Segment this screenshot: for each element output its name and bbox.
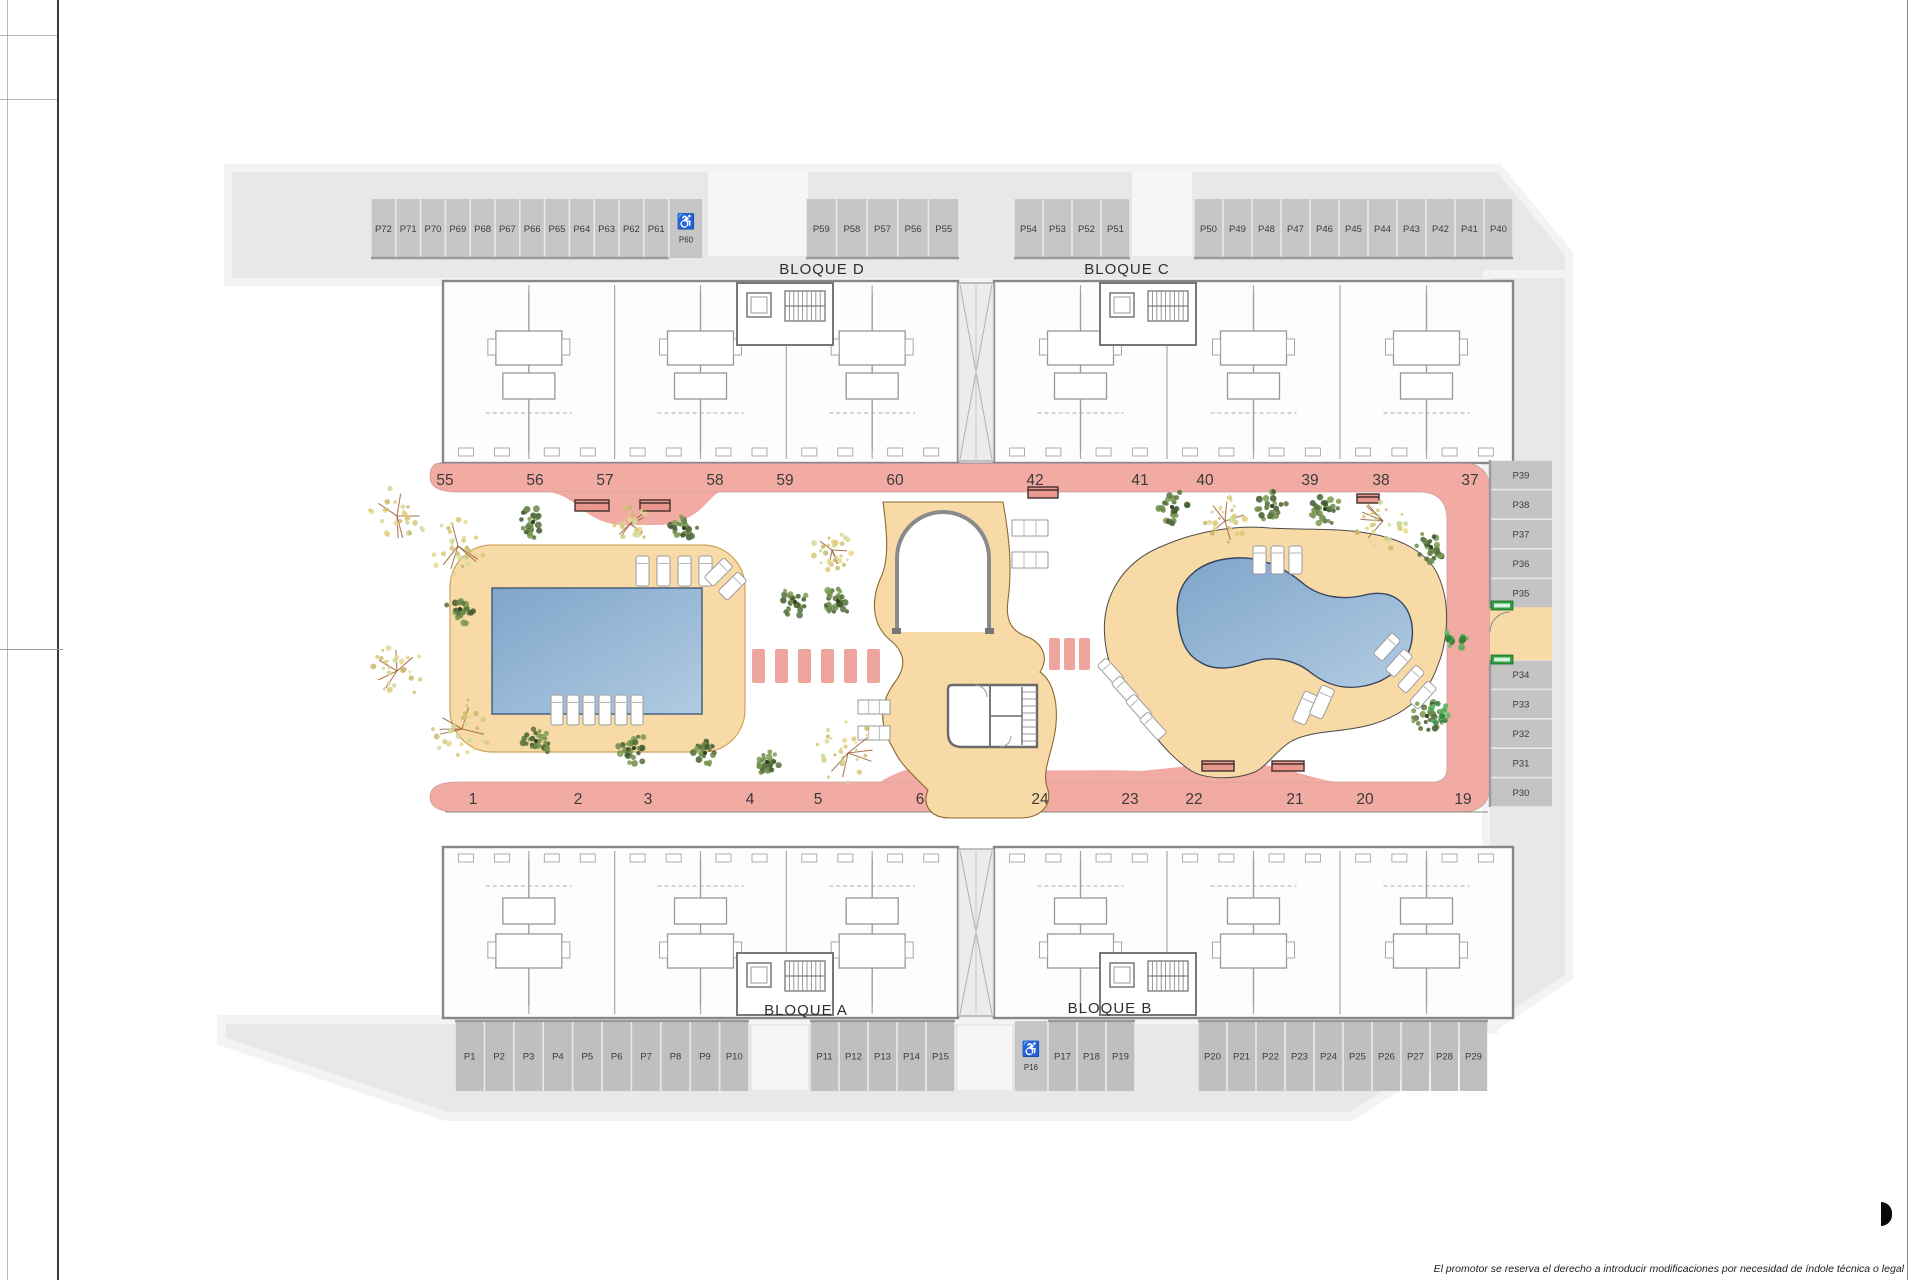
foliage-dot <box>626 742 630 746</box>
foliage-dot <box>481 553 486 558</box>
foliage-dot <box>851 736 856 741</box>
foliage-dot <box>437 746 441 750</box>
closet <box>905 339 913 355</box>
foliage-dot <box>820 561 823 564</box>
unit-number: 3 <box>644 791 653 808</box>
trunk-dot <box>703 751 707 755</box>
terrace-planter <box>924 448 939 456</box>
terrace-planter <box>838 448 853 456</box>
foliage-dot <box>796 594 800 598</box>
tree-icon <box>756 749 781 774</box>
sheet-edge-right <box>1907 0 1908 1280</box>
foliage-dot <box>1374 519 1378 523</box>
foliage-dot <box>1218 506 1222 510</box>
foliage-dot <box>420 526 424 530</box>
foliage-dot <box>448 530 452 534</box>
foliage-dot <box>456 753 460 757</box>
foliage-dot <box>1445 635 1452 642</box>
foliage-dot <box>402 667 407 672</box>
foliage-dot <box>368 508 372 512</box>
foliage-dot <box>1317 494 1324 501</box>
foliage-dot <box>464 621 469 626</box>
trunk-dot <box>531 520 535 524</box>
parking-stall-label: P23 <box>1291 1052 1308 1063</box>
foliage-dot <box>830 737 833 740</box>
foliage-dot <box>440 524 444 528</box>
terrace-planter <box>544 854 559 862</box>
foliage-dot <box>632 532 637 537</box>
foliage-dot <box>387 681 391 685</box>
sheet-edge-left-faint <box>7 0 8 1280</box>
foliage-dot <box>840 606 846 612</box>
parking-stall-label: P44 <box>1374 224 1391 235</box>
foliage-dot <box>615 743 621 749</box>
foliage-dot <box>1258 512 1264 518</box>
parking-stall-label: P3 <box>523 1052 535 1063</box>
foliage-dot <box>1336 499 1341 504</box>
foliage-dot <box>441 551 446 556</box>
parking-stall-label: P1 <box>464 1052 476 1063</box>
parking-stall-label: P64 <box>573 224 590 235</box>
foliage-dot <box>612 523 616 527</box>
parking-stall-label: P59 <box>813 224 830 235</box>
parking-stall-label: P8 <box>670 1052 682 1063</box>
foliage-dot <box>632 739 638 745</box>
parking-group: P39P38P37P36P35 <box>1490 460 1552 608</box>
parking-stall-label: P47 <box>1287 224 1304 235</box>
foliage-dot <box>844 720 847 723</box>
bench <box>1202 761 1234 771</box>
foliage-dot <box>826 608 832 614</box>
parking-stall-label: P36 <box>1513 559 1530 570</box>
terrace-planter <box>1269 854 1284 862</box>
stepping-stone <box>1079 638 1090 670</box>
tree-icon <box>1309 494 1341 526</box>
parking-stall-label: P65 <box>549 224 566 235</box>
foliage-dot <box>1233 505 1236 508</box>
foliage-dot <box>826 728 831 733</box>
foliage-dot <box>1319 515 1326 522</box>
foliage-dot <box>1184 502 1190 508</box>
parking-stall-label: P7 <box>640 1052 652 1063</box>
foliage-dot <box>406 655 410 659</box>
terrace-planter <box>630 854 645 862</box>
foliage-dot <box>786 606 790 610</box>
foliage-dot <box>1426 728 1430 732</box>
foliage-dot <box>824 587 831 594</box>
foliage-dot <box>826 602 831 607</box>
unit-number: 57 <box>596 472 613 489</box>
trunk-dot <box>632 746 636 750</box>
foliage-dot <box>475 553 479 557</box>
horseshoe-court-wall <box>897 512 989 632</box>
tree-icon <box>1254 489 1288 522</box>
foliage-dot <box>642 522 645 525</box>
foliage-dot <box>1369 539 1372 542</box>
parking-stall-label: P9 <box>699 1052 711 1063</box>
trunk-dot <box>682 526 686 530</box>
foliage-dot <box>465 561 471 567</box>
parking-stall-label: P13 <box>874 1052 891 1063</box>
foliage-dot <box>628 511 632 515</box>
terrace-planter <box>1183 448 1198 456</box>
unit-number: 2 <box>574 791 583 808</box>
wheelchair-icon: ♿ <box>1022 1040 1041 1058</box>
foliage-dot <box>521 511 525 515</box>
foliage-dot <box>543 741 547 745</box>
foliage-dot <box>855 757 859 761</box>
foliage-dot <box>468 610 474 616</box>
foliage-dot <box>1439 713 1445 719</box>
terrace-planter <box>1010 854 1025 862</box>
trunk-dot <box>458 607 462 611</box>
terrace-planter <box>888 854 903 862</box>
core-room <box>1394 331 1460 365</box>
core-room <box>503 373 555 399</box>
sun-lounger <box>631 695 643 725</box>
foliage-dot <box>465 704 469 708</box>
foliage-dot <box>461 717 464 720</box>
pergola-bench <box>1012 520 1048 536</box>
label-bloque-d: BLOQUE D <box>779 261 865 278</box>
entrance-walk-bloque-c <box>1132 172 1192 256</box>
foliage-dot <box>481 739 484 742</box>
foliage-dot <box>841 756 844 759</box>
foliage-dot <box>821 757 827 763</box>
foliage-dot <box>759 770 764 775</box>
parking-stall-label: P69 <box>449 224 466 235</box>
core-room <box>846 373 898 399</box>
closet <box>905 942 913 958</box>
foliage-dot <box>466 750 470 754</box>
foliage-dot <box>461 564 465 568</box>
foliage-dot <box>462 536 466 540</box>
foliage-dot <box>679 515 683 519</box>
foliage-dot <box>840 747 843 750</box>
closet <box>660 339 668 355</box>
foliage-dot <box>1443 703 1448 708</box>
foliage-dot <box>451 724 456 729</box>
core-room <box>503 898 555 924</box>
terrace-planter <box>1219 854 1234 862</box>
parking-stall-label: P15 <box>932 1052 949 1063</box>
terrace-planter <box>495 854 510 862</box>
foliage-dot <box>467 698 470 701</box>
terrace-planter <box>1442 448 1457 456</box>
foliage-dot <box>1362 515 1366 519</box>
foliage-dot <box>544 746 550 752</box>
sun-lounger <box>551 695 563 725</box>
foliage-dot <box>1428 558 1434 564</box>
parking-stall-label: P38 <box>1513 500 1530 511</box>
terrace-planter <box>544 448 559 456</box>
foliage-dot <box>450 522 454 526</box>
bench <box>575 500 609 511</box>
foliage-dot <box>1434 542 1440 548</box>
label-bloque-b: BLOQUE B <box>1068 1000 1153 1017</box>
sun-lounger <box>1253 546 1266 574</box>
foliage-dot <box>1227 526 1230 529</box>
terrace-planter <box>666 854 681 862</box>
foliage-dot <box>783 609 788 614</box>
foliage-dot <box>475 726 479 730</box>
foliage-dot <box>622 505 627 510</box>
stepping-stone <box>821 649 834 683</box>
terrace-planter <box>802 448 817 456</box>
unit-number: 4 <box>746 791 755 808</box>
foliage-dot <box>1232 514 1237 519</box>
parking-stall-label: P46 <box>1316 224 1333 235</box>
foliage-dot <box>474 535 478 539</box>
disclaimer-text: El promotor se reserva el derecho a intr… <box>1434 1263 1904 1275</box>
unit-number: 37 <box>1461 472 1478 489</box>
terrace-planter <box>630 448 645 456</box>
foliage-dot <box>811 553 817 559</box>
foliage-dot <box>520 739 527 746</box>
closet <box>1386 339 1394 355</box>
foliage-dot <box>857 770 862 775</box>
unit-number: 39 <box>1301 472 1318 489</box>
label-bloque-a: BLOQUE A <box>764 1002 848 1019</box>
unit-number: 38 <box>1372 472 1389 489</box>
parking-stall-label: P20 <box>1204 1052 1221 1063</box>
stepping-stone <box>775 649 788 683</box>
foliage-dot <box>1235 532 1238 535</box>
foliage-dot <box>406 505 409 508</box>
terrace-planter <box>458 854 473 862</box>
sun-lounger <box>657 556 670 586</box>
parking-stall-label: P63 <box>598 224 615 235</box>
foliage-dot <box>1423 706 1427 710</box>
foliage-dot <box>631 513 635 517</box>
parking-stall-label: P42 <box>1432 224 1449 235</box>
foliage-dot <box>840 554 843 557</box>
terrace-planter <box>1356 854 1371 862</box>
terrace-planter <box>838 854 853 862</box>
terrace-planter <box>1442 854 1457 862</box>
parking-group: P34P33P32P31P30 <box>1490 660 1552 807</box>
foliage-dot <box>467 738 472 743</box>
stepping-stone <box>844 649 857 683</box>
foliage-dot <box>835 566 840 571</box>
foliage-dot <box>539 734 546 741</box>
foliage-dot <box>636 746 640 750</box>
tree-icon <box>824 587 849 614</box>
parking-stall-label: P61 <box>648 224 665 235</box>
terrace-planter <box>888 448 903 456</box>
tree-icon <box>370 645 422 694</box>
core-room <box>839 934 905 968</box>
tree-icon <box>780 589 808 619</box>
pergola-bench <box>1012 552 1048 568</box>
foliage-dot <box>417 655 421 659</box>
foliage-dot <box>627 760 632 765</box>
closet <box>1287 942 1295 958</box>
foliage-dot <box>1315 505 1321 511</box>
parking-stall-label: P22 <box>1262 1052 1279 1063</box>
foliage-dot <box>536 528 542 534</box>
foliage-dot <box>1403 528 1408 533</box>
sheet-tick-3 <box>0 649 63 650</box>
foliage-dot <box>524 529 529 534</box>
foliage-dot <box>866 733 869 736</box>
parking-stall-label: P53 <box>1049 224 1066 235</box>
wall-end-cap <box>892 628 901 634</box>
parking-stall-label: P4 <box>552 1052 564 1063</box>
foliage-dot <box>1416 721 1421 726</box>
foliage-dot <box>1330 504 1335 509</box>
foliage-dot <box>864 754 868 758</box>
terrace-planter <box>1356 448 1371 456</box>
foliage-dot <box>465 555 468 558</box>
foliage-dot <box>707 760 712 765</box>
foliage-dot <box>1385 508 1388 511</box>
terrace-planter <box>580 448 595 456</box>
terrace-planter <box>716 448 731 456</box>
foliage-dot <box>1420 532 1424 536</box>
foliage-dot <box>1242 516 1248 522</box>
core-room <box>846 898 898 924</box>
sun-lounger <box>1289 546 1302 574</box>
sun-lounger <box>567 695 579 725</box>
terrace-planter <box>1305 448 1320 456</box>
foliage-dot <box>392 683 397 688</box>
foliage-dot <box>1458 644 1465 651</box>
core-room <box>496 934 562 968</box>
foliage-dot <box>1400 513 1403 516</box>
closet <box>1213 339 1221 355</box>
sheet-tick-2 <box>0 99 57 100</box>
foliage-dot <box>1267 513 1273 519</box>
foliage-dot <box>1254 506 1260 512</box>
core-room <box>1221 934 1287 968</box>
foliage-dot <box>772 759 777 764</box>
unit-number: 22 <box>1185 791 1202 808</box>
foliage-dot <box>769 768 774 773</box>
foliage-dot <box>1415 701 1420 706</box>
parking-stall-label: P45 <box>1345 224 1362 235</box>
foliage-dot <box>802 604 806 608</box>
foliage-dot <box>639 532 642 535</box>
foliage-dot <box>680 533 685 538</box>
foliage-dot <box>538 729 542 733</box>
terrace-planter <box>1046 854 1061 862</box>
closet <box>1460 339 1468 355</box>
parking-stall-label: P26 <box>1378 1052 1395 1063</box>
parking-stall-label: P19 <box>1112 1052 1129 1063</box>
closet <box>1040 339 1048 355</box>
parking-stall-label: P43 <box>1403 224 1420 235</box>
foliage-dot <box>695 526 699 530</box>
foliage-dot <box>1283 501 1287 505</box>
wall-end-cap <box>985 628 994 634</box>
foliage-dot <box>463 520 467 524</box>
terrace-planter <box>924 854 939 862</box>
foliage-dot <box>632 517 638 523</box>
parking-group: P50P49P48P47P46P45P44P43P42P41P40 <box>1194 199 1513 258</box>
foliage-dot <box>530 513 534 517</box>
foliage-dot <box>535 522 542 529</box>
foliage-dot <box>1169 520 1175 526</box>
foliage-dot <box>409 675 414 680</box>
foliage-dot <box>627 517 632 522</box>
foliage-dot <box>1414 544 1418 548</box>
unit-number: 55 <box>436 472 453 489</box>
foliage-dot <box>375 655 379 659</box>
sun-lounger <box>636 556 649 586</box>
wheelchair-icon: ♿ <box>677 213 696 231</box>
tree-icon <box>368 486 425 539</box>
site-plan-drawing: P72P71P70P69P68P67P66P65P64P63P62P61P59P… <box>0 0 1920 1280</box>
parking-stall-label: P29 <box>1465 1052 1482 1063</box>
foliage-dot <box>412 520 418 526</box>
terrace-planter <box>1478 854 1493 862</box>
foliage-dot <box>533 505 540 512</box>
foliage-dot <box>1161 508 1166 513</box>
foliage-dot <box>524 506 531 513</box>
unit-number: 59 <box>776 472 793 489</box>
parking-stall-label: P31 <box>1513 758 1530 769</box>
foliage-dot <box>1231 518 1235 522</box>
parking-stall-label: P14 <box>903 1052 920 1063</box>
foliage-dot <box>819 549 822 552</box>
foliage-dot <box>387 670 392 675</box>
parking-stall-label: P16 <box>1024 1063 1039 1072</box>
foliage-dot <box>816 743 820 747</box>
stair-corridor-top <box>958 283 994 461</box>
foliage-dot <box>643 511 648 516</box>
foliage-dot <box>834 753 837 756</box>
parking-stall-label: P48 <box>1258 224 1275 235</box>
terrace-planter <box>1219 448 1234 456</box>
left-pool <box>492 588 702 714</box>
parking-stall-label: P27 <box>1407 1052 1424 1063</box>
foliage-dot <box>379 656 383 660</box>
foliage-dot <box>370 664 376 670</box>
foliage-dot <box>673 530 677 534</box>
foliage-dot <box>527 517 531 521</box>
foliage-dot <box>1433 720 1439 726</box>
foliage-dot <box>846 780 850 784</box>
foliage-dot <box>466 548 472 554</box>
terrace-planter <box>1183 854 1198 862</box>
foliage-dot <box>384 530 388 534</box>
foliage-dot <box>456 734 461 739</box>
foliage-dot <box>773 752 777 756</box>
foliage-dot <box>1174 513 1179 518</box>
foliage-dot <box>1428 539 1432 543</box>
terrace-planter <box>752 854 767 862</box>
foliage-dot <box>1279 502 1284 507</box>
foliage-dot <box>1411 719 1415 723</box>
foliage-dot <box>1460 636 1467 643</box>
tree-icon <box>519 505 542 539</box>
disabled-parking-stall: ♿P60 <box>670 199 702 258</box>
bench <box>640 500 670 511</box>
foliage-dot <box>1372 511 1375 514</box>
foliage-dot <box>1388 523 1391 526</box>
foliage-dot <box>827 775 830 778</box>
foliage-dot <box>1397 526 1403 532</box>
foliage-dot <box>767 749 772 754</box>
terrace-planter <box>1392 448 1407 456</box>
foliage-dot <box>620 524 625 529</box>
terrace-planter <box>1132 448 1147 456</box>
foliage-dot <box>842 563 846 567</box>
foliage-dot <box>1445 712 1451 718</box>
parking-stall-label: P12 <box>845 1052 862 1063</box>
terrace-planter <box>1269 448 1284 456</box>
